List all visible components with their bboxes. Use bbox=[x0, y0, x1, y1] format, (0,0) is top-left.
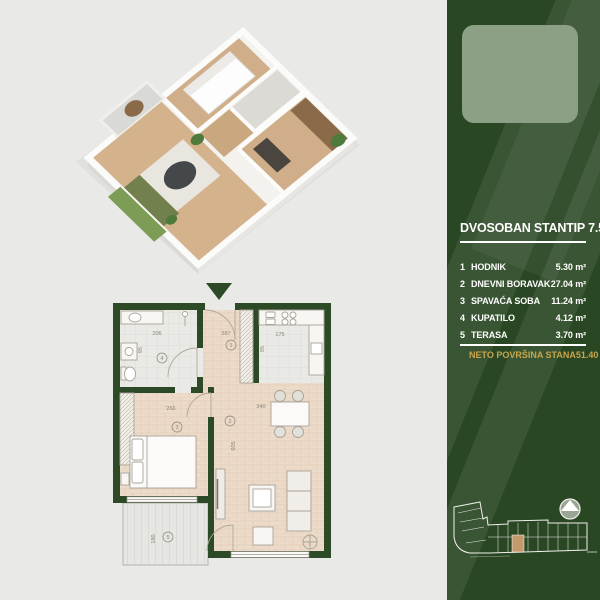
bath-counter bbox=[121, 311, 163, 324]
room-area: 27.04 m² bbox=[551, 279, 586, 289]
room-area: 3.70 m² bbox=[556, 330, 586, 340]
room-row: 4 KUPATILO 4.12 m² bbox=[460, 309, 586, 326]
apartment-type-title: DVOSOBAN STAN bbox=[460, 221, 566, 235]
room-number: 5 bbox=[166, 535, 169, 541]
room-row: 2 DNEVNI BORAVAK 27.04 m² bbox=[460, 275, 586, 292]
room-index: 4 bbox=[460, 313, 471, 323]
dim-label: 180 bbox=[151, 534, 157, 543]
total-divider bbox=[460, 344, 586, 346]
dim-label: 287 bbox=[221, 331, 230, 337]
floorplan-3d-render bbox=[66, 10, 374, 276]
dim-label: 175 bbox=[275, 332, 284, 338]
dim-label: 266 bbox=[166, 406, 175, 412]
apartment-type-number: TIP 7.5 bbox=[566, 221, 600, 235]
room-area: 4.12 m² bbox=[556, 313, 586, 323]
dining-table bbox=[271, 402, 309, 426]
room-index: 2 bbox=[460, 279, 471, 289]
sofa bbox=[287, 471, 311, 531]
floorplan-2d: 206 95 4 287 1 175 95 266 3 340 2 605 5 … bbox=[113, 301, 331, 573]
room-index: 5 bbox=[460, 330, 471, 340]
terrace-deck bbox=[123, 503, 208, 565]
room-area: 11.24 m² bbox=[551, 296, 586, 306]
room-name: KUPATILO bbox=[471, 313, 556, 323]
room-area: 5.30 m² bbox=[556, 262, 586, 272]
sidebar: DVOSOBAN STAN TIP 7.5 1 HODNIK 5.30 m² 2… bbox=[447, 0, 600, 600]
room-row: 3 SPAVAĆA SOBA 11.24 m² bbox=[460, 292, 586, 309]
room-number: 4 bbox=[160, 356, 163, 362]
room-number: 2 bbox=[228, 419, 231, 425]
total-area-value: 51.40 m² bbox=[576, 350, 600, 360]
site-plan bbox=[450, 495, 597, 573]
north-compass-icon bbox=[560, 499, 580, 519]
dim-label: 95 bbox=[138, 347, 144, 353]
room-row: 5 TERASA 3.70 m² bbox=[460, 326, 586, 343]
room-name: DNEVNI BORAVAK bbox=[471, 279, 551, 289]
room-row: 1 HODNIK 5.30 m² bbox=[460, 258, 586, 275]
apartment-header: DVOSOBAN STAN TIP 7.5 bbox=[460, 221, 586, 235]
room-name: TERASA bbox=[471, 330, 556, 340]
plan3d-rooms bbox=[66, 16, 353, 274]
room-number: 3 bbox=[175, 425, 178, 431]
toilet bbox=[125, 367, 136, 381]
dim-label: 206 bbox=[152, 331, 161, 337]
dim-label: 340 bbox=[256, 404, 265, 410]
header-divider bbox=[460, 241, 586, 243]
room-list: 1 HODNIK 5.30 m² 2 DNEVNI BORAVAK 27.04 … bbox=[460, 258, 586, 343]
highlighted-unit bbox=[512, 535, 524, 552]
room-name: HODNIK bbox=[471, 262, 556, 272]
total-area-label: NETO POVRŠINA STANA bbox=[469, 350, 576, 360]
total-area-row: NETO POVRŠINA STANA 51.40 m² bbox=[460, 350, 586, 360]
dim-label: 605 bbox=[231, 441, 237, 450]
brochure-page: 206 95 4 287 1 175 95 266 3 340 2 605 5 … bbox=[0, 0, 600, 600]
entrance-arrow-icon bbox=[206, 283, 232, 300]
logo-placeholder bbox=[462, 25, 578, 123]
dim-label: 95 bbox=[260, 346, 266, 352]
room-name: SPAVAĆA SOBA bbox=[471, 296, 551, 306]
room-index: 3 bbox=[460, 296, 471, 306]
room-index: 1 bbox=[460, 262, 471, 272]
room-number: 1 bbox=[229, 343, 232, 349]
hall-wardrobe bbox=[240, 310, 253, 383]
